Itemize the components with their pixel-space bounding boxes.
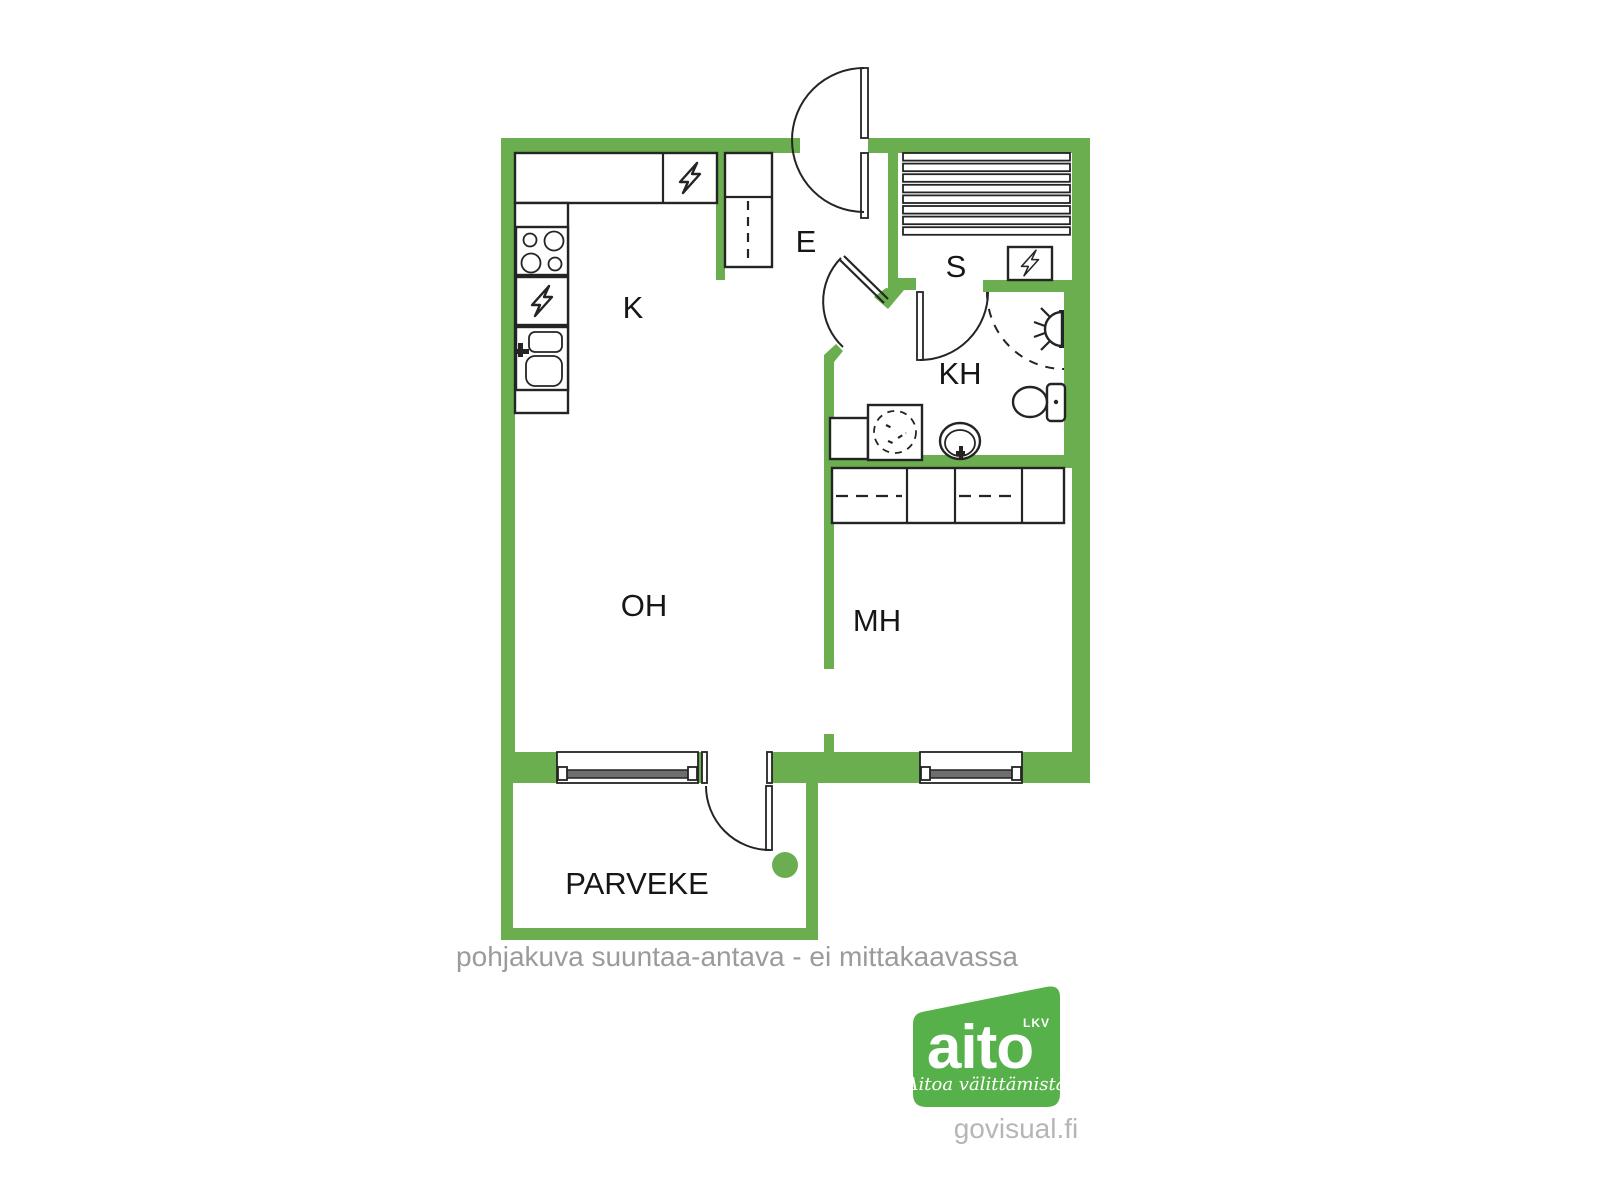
glazing-bar <box>566 770 689 778</box>
sauna-door-swing-icon <box>917 292 988 360</box>
living-room-window-icon <box>557 752 698 783</box>
wall-living-bedroom-stub <box>824 734 834 752</box>
washing-machine-icon <box>868 405 922 460</box>
label-living-room: OH <box>621 588 668 623</box>
aito-logo: aito LKV Aitoa välittämistä <box>904 986 1067 1107</box>
wall-south-c <box>772 752 920 783</box>
balcony-door-swing-icon <box>702 752 772 850</box>
stove-icon <box>516 227 568 275</box>
wall-south-a <box>515 752 557 783</box>
shower-icon <box>1034 308 1064 350</box>
label-bedroom: MH <box>853 603 901 638</box>
wall-balcony-left <box>501 783 513 940</box>
toilet-icon <box>1013 384 1065 421</box>
aito-logo-lkv: LKV <box>1023 1016 1050 1030</box>
bath-cabinet <box>830 418 868 459</box>
wall-balcony-bottom <box>501 928 818 940</box>
credit-text: govisual.fi <box>954 1113 1079 1144</box>
basin-icon <box>940 423 980 459</box>
wall-top-right <box>868 138 1090 153</box>
entry-door-swing-icon <box>792 68 868 218</box>
tall-cabinet-icon <box>725 153 772 267</box>
label-balcony: PARVEKE <box>565 866 709 901</box>
disclaimer-text: pohjakuva suuntaa-antava - ei mittakaava… <box>456 941 1018 972</box>
dishwasher-icon <box>516 277 568 325</box>
label-bathroom: KH <box>938 356 981 391</box>
wall-right <box>1072 138 1090 783</box>
wall-hall-sauna <box>888 153 898 280</box>
wall-sauna-bath <box>983 280 1064 292</box>
wall-right-bathroom-liner <box>1064 280 1074 468</box>
label-sauna: S <box>946 249 967 284</box>
wall-hall-sauna-foot <box>888 278 916 290</box>
wall-left <box>501 138 515 783</box>
glazing-bar <box>929 770 1013 778</box>
label-kitchen: K <box>623 290 644 325</box>
closet-row <box>832 468 1064 523</box>
balcony-dot-icon <box>772 852 798 878</box>
bedroom-fixtures <box>832 468 1064 523</box>
kitchen-fixtures <box>515 153 717 413</box>
sauna-heater-icon <box>1008 247 1052 280</box>
bath-door-swing-icon <box>823 256 888 347</box>
sauna-bench-icon <box>903 153 1070 235</box>
wall-top-left <box>501 138 800 153</box>
kitchen-sink-icon <box>516 327 568 390</box>
label-entrance: E <box>796 224 817 259</box>
wall-balcony-right <box>806 783 818 940</box>
wall-south-d <box>1022 752 1074 783</box>
floorplan-image: K E S KH OH MH PARVEKE pohjakuva suuntaa… <box>0 0 1600 1200</box>
aito-logo-wordmark: aito <box>927 1013 1033 1082</box>
aito-logo-tagline: Aitoa välittämistä <box>904 1074 1067 1095</box>
bedroom-window-icon <box>920 752 1022 783</box>
